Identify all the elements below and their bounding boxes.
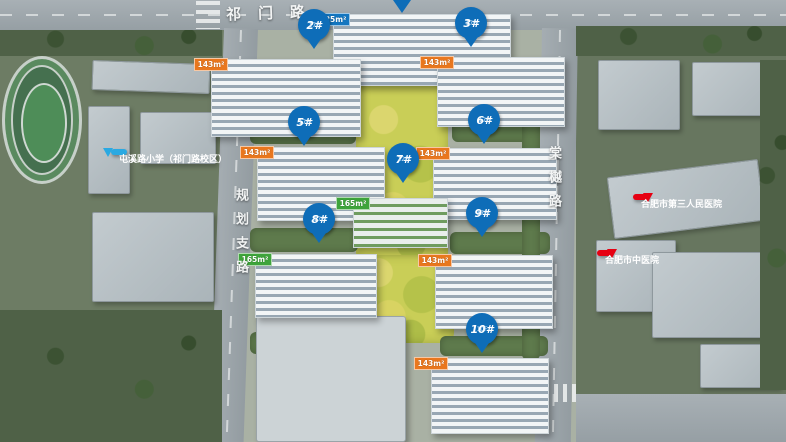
building-10-body [431, 358, 549, 434]
road-label-left: 规划支路 [231, 188, 250, 284]
stadium-track [2, 56, 82, 184]
trees-bottom-left [0, 310, 222, 442]
road-bottom-right [576, 394, 786, 442]
pin-floors: 17F [476, 210, 487, 217]
poi-hospital-2-label: 合肥市中医院 [597, 250, 613, 256]
pin-floors: 17F [308, 22, 319, 29]
area-tag: 143m² [414, 357, 449, 370]
pin-floors: 12F [397, 156, 408, 163]
poi-hospital-2-pointer [607, 249, 617, 263]
area-tag: 143m² [420, 56, 455, 69]
site-plan-aerial-map: 125m² 105m² 105m² 125m² 143m² 125m² 125m… [0, 0, 786, 442]
trees-right-edge [760, 60, 786, 390]
pin-floors: 10F [476, 326, 487, 333]
pin-floors: 17F [465, 20, 476, 27]
poi-hospital-1-label: 合肥市第三人民医院 [633, 194, 649, 200]
hospital-building [652, 252, 774, 338]
building-8-body [255, 254, 377, 318]
area-tag: 143m² [418, 254, 453, 267]
garden [250, 228, 358, 252]
pin-floors: 17F [298, 119, 309, 126]
area-tag: 143m² [416, 147, 451, 160]
road-label-right: 棠樾路 [544, 146, 563, 218]
building-2-body [211, 59, 361, 137]
poi-hospital-1-text: 合肥市第三人民医院 [641, 197, 722, 210]
pin-floors: 17F [478, 117, 489, 124]
trees-top-left [0, 30, 222, 56]
crosswalk-top-left [196, 1, 220, 29]
poi-hospital-1-pointer [643, 193, 653, 207]
kindergarten-building [256, 316, 406, 442]
stadium-field [21, 83, 67, 163]
poi-school-pointer [103, 148, 113, 162]
pin-cropped-tip [393, 0, 411, 22]
area-tag: 165m² [336, 197, 371, 210]
hospital-building [598, 60, 680, 130]
poi-school-text: 屯溪路小学（祁门路校区） [119, 152, 227, 165]
pin-floors: 17F [313, 216, 324, 223]
building-3-body [437, 57, 565, 127]
area-tag: 143m² [240, 146, 275, 159]
school-building [92, 212, 214, 302]
area-tag: 143m² [194, 58, 229, 71]
trees-top-right [576, 26, 786, 56]
poi-school-label: 屯溪路小学（祁门路校区） [111, 149, 127, 155]
